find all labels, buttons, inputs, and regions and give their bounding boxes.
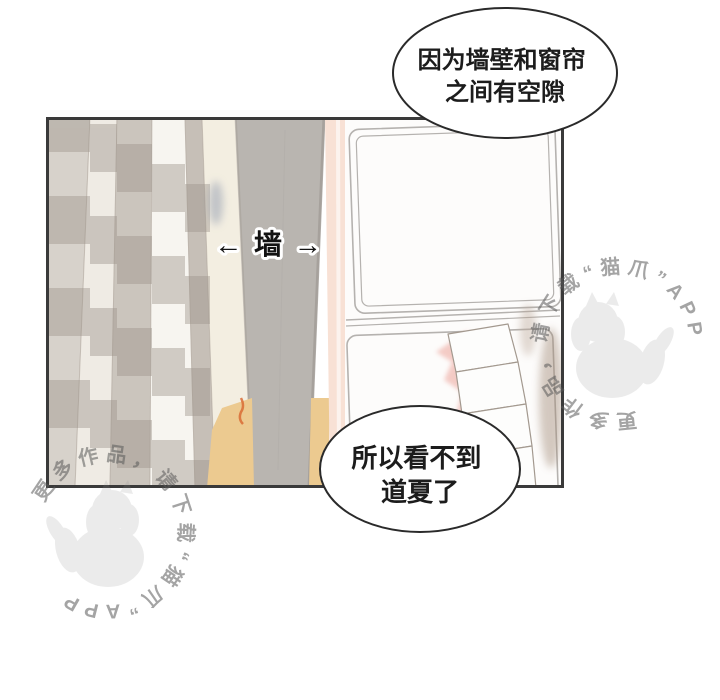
bubble-bottom-line-2: 道夏了	[381, 477, 459, 507]
mascot-ball	[72, 527, 144, 587]
mascot-hair-right	[605, 316, 625, 348]
mascot-ear-right	[606, 292, 619, 306]
mascot-hair-left	[571, 317, 591, 351]
comic-page: ← 墙 → 因为墙壁和窗帘 之间有空隙 所以看不到 道夏了 更多作品，请下载“猫…	[0, 0, 720, 700]
watermark-mascot-icon	[571, 292, 678, 398]
bubble-top-line-2: 之间有空隙	[445, 78, 565, 106]
mascot-hair-right	[119, 504, 139, 536]
speech-bubble-top: 因为墙壁和窗帘 之间有空隙	[393, 8, 617, 138]
comic-panel-scene: ← 墙 → 因为墙壁和窗帘 之间有空隙 所以看不到 道夏了 更多作品，请下载“猫…	[0, 0, 720, 700]
mascot-ear-left	[586, 292, 599, 306]
speech-bubble-bottom: 所以看不到 道夏了	[320, 406, 520, 532]
curtain-smudge	[209, 181, 223, 225]
wall-label: ← 墙 →	[214, 229, 324, 260]
watermark-mascot-icon	[42, 480, 144, 587]
bubble-bottom-line-1: 所以看不到	[351, 443, 481, 473]
bubble-top-line-1: 因为墙壁和窗帘	[418, 46, 586, 74]
mascot-hair-left	[86, 505, 106, 539]
